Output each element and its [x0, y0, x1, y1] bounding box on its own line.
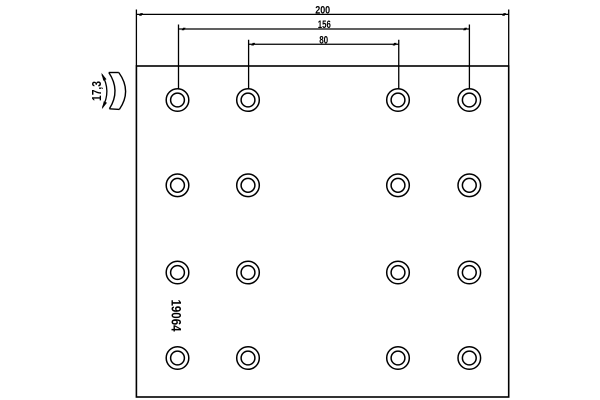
svg-text:17,3: 17,3: [90, 81, 104, 101]
svg-text:156: 156: [318, 19, 331, 31]
svg-text:80: 80: [319, 35, 328, 47]
svg-text:19064: 19064: [169, 300, 185, 332]
svg-text:200: 200: [315, 5, 330, 17]
